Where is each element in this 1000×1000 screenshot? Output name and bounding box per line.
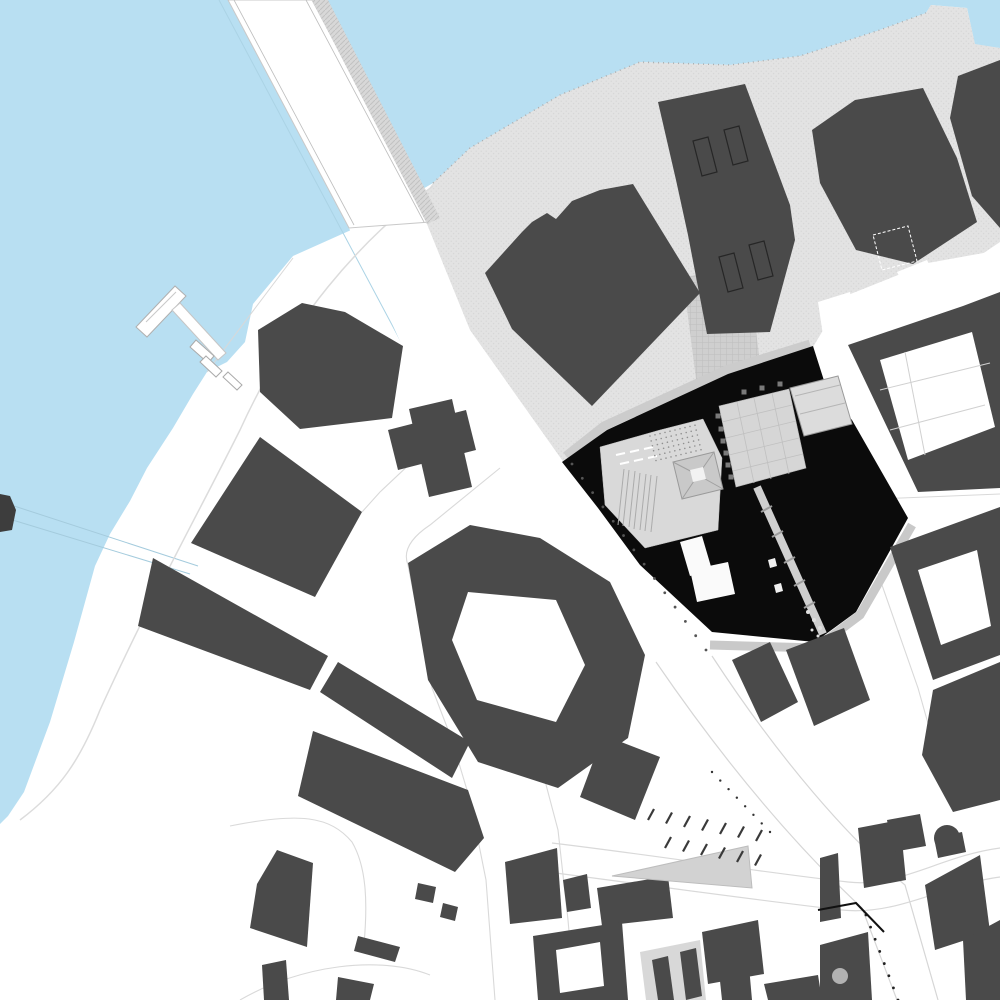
canopy-dots-dot bbox=[690, 451, 692, 453]
canopy-dots-dot bbox=[669, 451, 671, 453]
canopy-dots-dot bbox=[689, 446, 691, 448]
canopy-dots-dot bbox=[689, 426, 691, 428]
tram-platform bbox=[612, 846, 752, 888]
street-trees-dot bbox=[663, 591, 666, 594]
canopy-dots-dot bbox=[659, 433, 661, 435]
canopy-dots-dot bbox=[699, 444, 701, 446]
street-trees-dot bbox=[591, 491, 594, 494]
canopy-dots-dot bbox=[698, 439, 700, 441]
building bbox=[354, 936, 400, 962]
bollard-line-dot bbox=[887, 974, 890, 977]
walkway-dot bbox=[812, 618, 816, 622]
colonnade-column bbox=[719, 427, 724, 432]
parking-row-dash bbox=[684, 816, 690, 827]
canopy-dots-dot bbox=[654, 434, 656, 436]
canopy-dots-dot bbox=[662, 443, 664, 445]
canopy-dots-dot bbox=[693, 440, 695, 442]
canopy-dots-dot bbox=[683, 443, 685, 445]
canopy-dots-dot bbox=[669, 430, 671, 432]
canopy-dots-dot bbox=[655, 439, 657, 441]
canopy-dots-dot bbox=[658, 449, 660, 451]
canopy-dots-dot bbox=[659, 454, 661, 456]
bollard-line-dot bbox=[727, 788, 729, 790]
street-trees-dot bbox=[694, 634, 697, 637]
canopy-dots-dot bbox=[692, 435, 694, 437]
building bbox=[786, 628, 870, 726]
canopy-dots-dot bbox=[665, 437, 667, 439]
canopy-dots-dot bbox=[688, 442, 690, 444]
colonnade-column bbox=[729, 475, 734, 480]
parking-row-dash bbox=[701, 844, 707, 855]
courtyard bbox=[556, 942, 604, 993]
bollard-line-dot bbox=[752, 814, 754, 816]
map-canvas bbox=[0, 0, 1000, 1000]
colonnade-column bbox=[760, 386, 765, 391]
walkway-dot bbox=[811, 629, 814, 632]
parking-row-dash bbox=[683, 841, 689, 852]
canopy-dots-dot bbox=[660, 438, 662, 440]
street-trees-dot bbox=[653, 577, 656, 580]
canopy-dots-dot bbox=[674, 450, 676, 452]
street-trees-dot bbox=[602, 506, 605, 509]
colonnade-column bbox=[721, 439, 726, 444]
canopy-dots-dot bbox=[675, 455, 677, 457]
building bbox=[440, 903, 458, 921]
canopy-dots-dot bbox=[695, 450, 697, 452]
building bbox=[764, 975, 822, 1000]
colonnade-column bbox=[778, 382, 783, 387]
street-trees-dot bbox=[643, 563, 646, 566]
canopy-dots-dot bbox=[695, 429, 697, 431]
canopy-dots-dot bbox=[653, 450, 655, 452]
building bbox=[887, 814, 926, 852]
canopy-dots-dot bbox=[670, 435, 672, 437]
canopy-dots-dot bbox=[670, 456, 672, 458]
map-render-root bbox=[0, 0, 1000, 1000]
canopy-dots-dot bbox=[694, 445, 696, 447]
building bbox=[702, 920, 764, 984]
parking-row-dash bbox=[665, 837, 671, 848]
canopy-dots-dot bbox=[685, 432, 687, 434]
bollard-line-dot bbox=[744, 805, 746, 807]
street-trees-dot bbox=[705, 649, 708, 652]
tree-canopy bbox=[832, 968, 848, 984]
canopy-dots-dot bbox=[672, 440, 674, 442]
street-trees-dot bbox=[622, 534, 625, 537]
building bbox=[262, 960, 289, 1000]
canopy-dots-dot bbox=[694, 424, 696, 426]
building bbox=[563, 874, 591, 912]
street-trees-dot bbox=[684, 620, 687, 623]
parking-row-dash bbox=[738, 827, 744, 838]
canopy-dots-dot bbox=[678, 444, 680, 446]
street-trees-dot bbox=[674, 606, 677, 609]
parking-row-dash bbox=[756, 830, 762, 841]
parking-row-dash bbox=[720, 823, 726, 834]
bollard-line-dot bbox=[711, 771, 713, 773]
canopy-dots-dot bbox=[657, 444, 659, 446]
bollard-line-dot bbox=[892, 986, 895, 989]
bollard-line-dot bbox=[883, 962, 886, 965]
bollard-line-dot bbox=[874, 938, 877, 941]
canopy-dots-dot bbox=[685, 453, 687, 455]
canopy-dots-dot bbox=[697, 434, 699, 436]
parking-row bbox=[648, 809, 762, 841]
street-trees-dot bbox=[581, 477, 584, 480]
canopy-dots-dot bbox=[652, 445, 654, 447]
bollard-line-dot bbox=[869, 926, 872, 929]
canopy-dots-dot bbox=[677, 439, 679, 441]
canopy-dots-dot bbox=[682, 438, 684, 440]
building bbox=[191, 437, 362, 597]
canopy-dots-dot bbox=[664, 432, 666, 434]
colonnade-column bbox=[716, 414, 721, 419]
moored-boat bbox=[223, 372, 242, 390]
walkway-dot bbox=[806, 610, 810, 614]
walkway-dot bbox=[818, 626, 822, 630]
canopy-dots-dot bbox=[684, 427, 686, 429]
canopy-dots-dot bbox=[700, 449, 702, 451]
building bbox=[505, 848, 562, 924]
building bbox=[820, 853, 841, 922]
canopy-dots-dot bbox=[664, 452, 666, 454]
building bbox=[597, 876, 673, 926]
building bbox=[258, 303, 403, 429]
canopy-dots-dot bbox=[679, 428, 681, 430]
building bbox=[250, 850, 313, 947]
building bbox=[922, 662, 1000, 812]
bollard-line-dot bbox=[769, 831, 771, 833]
parking-row-dash bbox=[702, 820, 708, 831]
canopy-dots-dot bbox=[660, 459, 662, 461]
bollard-line-dot bbox=[736, 797, 738, 799]
canopy-dots-dot bbox=[675, 434, 677, 436]
canopy-dots-dot bbox=[690, 431, 692, 433]
canopy-dots-dot bbox=[663, 448, 665, 450]
parking-row-dash bbox=[666, 813, 672, 824]
parking-row-dash bbox=[755, 855, 761, 866]
building bbox=[415, 883, 436, 903]
street-trees-dot bbox=[632, 548, 635, 551]
parking-row-dash bbox=[648, 809, 654, 820]
canopy-dots-dot bbox=[649, 435, 651, 437]
colonnade-column bbox=[742, 390, 747, 395]
canopy-dots-dot bbox=[673, 445, 675, 447]
canopy-dots-dot bbox=[668, 446, 670, 448]
building bbox=[820, 932, 872, 1000]
canopy-dots-dot bbox=[680, 433, 682, 435]
bollard-line-dot bbox=[719, 779, 721, 781]
bollard-line-dot bbox=[761, 822, 763, 824]
street-trees-dot bbox=[612, 520, 615, 523]
street-trees-dot bbox=[571, 463, 574, 466]
canopy-dots-dot bbox=[654, 455, 656, 457]
canopy-dots-dot bbox=[655, 460, 657, 462]
canopy-dots-dot bbox=[684, 448, 686, 450]
colonnade-column bbox=[726, 463, 731, 468]
walkway-dot bbox=[817, 635, 820, 638]
bollard-line-dot bbox=[878, 950, 881, 953]
canopy-dots-dot bbox=[674, 429, 676, 431]
canopy-dots-dot bbox=[680, 454, 682, 456]
canopy-dots-dot bbox=[687, 437, 689, 439]
canopy-dots-dot bbox=[665, 457, 667, 459]
site-plan-map bbox=[0, 0, 1000, 1000]
canopy-dots-dot bbox=[679, 449, 681, 451]
building bbox=[336, 977, 374, 1000]
canopy-dots-dot bbox=[667, 441, 669, 443]
colonnade-column bbox=[724, 451, 729, 456]
canopy-dots-dot bbox=[650, 440, 652, 442]
